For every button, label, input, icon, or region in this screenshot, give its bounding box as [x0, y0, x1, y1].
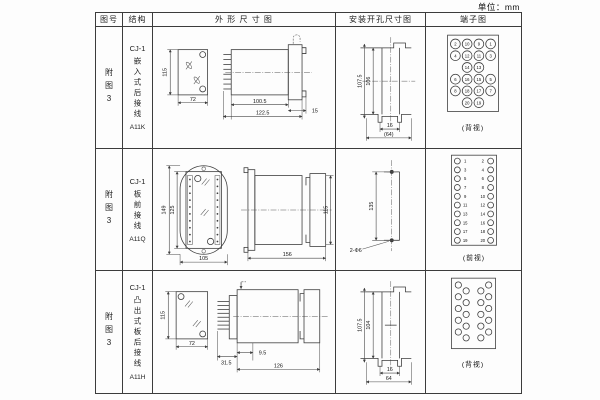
terminal-number: 16: [480, 220, 485, 225]
model-label: CJ-1: [130, 44, 146, 53]
dim-flange: 15: [311, 108, 317, 114]
header-terminal: 端子图: [426, 13, 521, 27]
terminal-number: 2: [482, 158, 485, 163]
terminal-number: 19: [463, 237, 468, 242]
type-code: A11Q: [129, 236, 145, 243]
dim-pin-depth: 31.5: [221, 360, 232, 366]
pin-comb: [223, 54, 231, 88]
dim-side-height: 115: [323, 205, 329, 214]
dim-panel-width: (64): [384, 131, 394, 137]
terminal-number: 13: [463, 211, 468, 216]
terminal-number: 20: [465, 100, 470, 105]
terminal-number: 4: [482, 167, 485, 172]
header-figure: 图号: [96, 13, 123, 27]
terminal-diagram-a11k: 2 10 9 1 4 12 11 3 14 13 6 16 15 5 8 18 …: [427, 28, 520, 148]
mounting-drawing-a11k: 107.5 106 16 (64): [337, 28, 425, 148]
terminal-circles: [450, 39, 495, 108]
mounting-drawing-a11q: 135 2-Φ6: [337, 150, 425, 270]
figure-label: 附图3: [104, 190, 115, 230]
terminal-number: 16: [465, 76, 470, 81]
dim-mount-inner-height: 106: [366, 76, 372, 85]
header-mounting: 安装开孔尺寸图: [336, 13, 426, 27]
terminal-number: 6: [482, 176, 485, 181]
seal-mark: [184, 301, 200, 328]
terminal-number: 11: [477, 53, 482, 58]
structure-desc: 嵌入式后接线: [132, 57, 143, 120]
terminal-number: 8: [482, 185, 485, 190]
row1-figure-cell: 附图3: [96, 27, 123, 149]
dim-mount-inner-height: 104: [366, 321, 372, 330]
row3-mounting-cell: 107.5 104 16 64: [336, 271, 426, 393]
dim-panel-width: 64: [385, 376, 391, 382]
terminal-diagram-a11h: (背视): [427, 272, 520, 392]
terminal-number: 5: [464, 176, 467, 181]
terminal-number: 5: [489, 76, 492, 81]
terminal-diagram-a11q: 1 3 5 7 9 11 13 15 17 19 2 4 6 8 10 12 1…: [427, 150, 520, 270]
terminal-number: 19: [477, 100, 482, 105]
terminal-numbers: 1 3 5 7 9 11 13 15 17 19 2 4 6 8 10 12 1…: [463, 158, 486, 242]
terminal-number: 3: [464, 167, 467, 172]
dim-side-total-depth: 122.5: [255, 110, 269, 116]
dim-side-depth: 126: [273, 363, 282, 369]
figure-label: 附图3: [104, 68, 115, 108]
dim-plate-height: 149: [161, 205, 167, 214]
hole-spec-label: 2-Φ6: [349, 248, 361, 254]
terminal-number: 12: [480, 202, 485, 207]
terminal-number: 20: [480, 237, 485, 242]
terminal-number: 15: [477, 76, 482, 81]
row1-mounting-cell: 107.5 106 16 (64): [336, 27, 426, 149]
view-caption: (前视): [463, 252, 485, 261]
dim-front-width: 72: [189, 96, 195, 102]
seal-mark: [185, 61, 200, 84]
outline-drawing-a11k: 115 72 100.5 122.5: [154, 28, 335, 148]
row2-figure-cell: 附图3: [96, 149, 123, 271]
dim-slot-width: 16: [386, 367, 392, 373]
terminal-number: 12: [465, 53, 470, 58]
type-code: A11K: [130, 124, 145, 131]
structure-desc: 凸出式板后接线: [132, 296, 143, 370]
terminal-number: 3: [489, 53, 492, 58]
terminal-numbers: 2 10 9 1 4 12 11 3 14 13 6 16 15 5 8 18 …: [454, 41, 492, 105]
dim-front-width: 72: [188, 341, 194, 347]
row3-figure-cell: 附图3: [96, 271, 123, 393]
row1-terminal-cell: 2 10 9 1 4 12 11 3 14 13 6 16 15 5 8 18 …: [426, 27, 521, 149]
model-label: CJ-1: [130, 283, 146, 292]
outline-drawing-a11q: 149 125 105 156 115: [154, 150, 335, 270]
row3-outline-cell: 115 72 31.5 9: [153, 271, 336, 393]
terminal-number: 18: [480, 229, 485, 234]
row3-structure-cell: CJ-1 凸出式板后接线 A11H: [123, 271, 153, 393]
dim-slot-width: 16: [386, 123, 392, 129]
model-label: CJ-1: [130, 177, 146, 186]
row2-terminal-cell: 1 3 5 7 9 11 13 15 17 19 2 4 6 8 10 12 1…: [426, 149, 521, 271]
dim-hole-spacing: 135: [369, 201, 375, 210]
terminal-number: 7: [464, 185, 467, 190]
terminal-number: 13: [477, 65, 482, 70]
dim-body-height: 125: [170, 205, 176, 214]
pin-comb: [217, 302, 229, 330]
terminal-number: 18: [465, 88, 470, 93]
page: { "unit_label": "单位：mm", "header": { "fi…: [0, 0, 600, 400]
structure-desc: 板前接线: [132, 190, 143, 232]
dim-front-height: 115: [160, 311, 166, 320]
terminal-number: 17: [463, 229, 468, 234]
dim-mount-outer-height: 107.5: [357, 318, 363, 331]
terminal-number: 15: [463, 220, 468, 225]
dimension-table: 图号 结构 外 形 尺 寸 图 安装开孔尺寸图 端子图 附图3 CJ-1 嵌入式…: [95, 12, 522, 394]
terminal-number: 6: [454, 76, 457, 81]
terminal-number: 7: [489, 88, 492, 93]
terminal-number: 8: [454, 88, 457, 93]
row2-mounting-cell: 135 2-Φ6: [336, 149, 426, 271]
mounting-drawing-a11h: 107.5 104 16 64: [337, 272, 425, 392]
row1-structure-cell: CJ-1 嵌入式后接线 A11K: [123, 27, 153, 149]
terminal-number: 10: [465, 41, 470, 46]
dim-front-height: 115: [162, 67, 168, 76]
header-outline: 外 形 尺 寸 图: [153, 13, 336, 27]
view-caption: (背视): [462, 359, 484, 368]
dim-mount-outer-height: 107.5: [357, 74, 363, 87]
terminal-circles: [455, 282, 492, 341]
terminal-number: 2: [454, 41, 457, 46]
dim-plate-width: 105: [199, 256, 208, 262]
terminal-number: 9: [464, 193, 467, 198]
terminal-number: 4: [454, 53, 457, 58]
terminal-number: 14: [465, 65, 470, 70]
terminal-number: 1: [464, 158, 467, 163]
terminal-number: 1: [489, 41, 492, 46]
terminal-number: 10: [480, 193, 485, 198]
terminal-number: 9: [478, 41, 481, 46]
terminal-strip-dots: [189, 178, 218, 242]
terminal-number: 11: [463, 202, 468, 207]
row3-terminal-cell: (背视): [426, 271, 521, 393]
figure-label: 附图3: [104, 312, 115, 352]
dim-offset: 9.5: [258, 351, 266, 357]
row2-outline-cell: 149 125 105 156 115: [153, 149, 336, 271]
row1-outline-cell: 115 72 100.5 122.5: [153, 27, 336, 149]
outline-drawing-a11h: 115 72 31.5 9: [154, 272, 335, 392]
terminal-circles: [454, 158, 493, 243]
header-structure: 结构: [123, 13, 153, 27]
terminal-number: 17: [477, 88, 482, 93]
terminal-number: 14: [480, 211, 485, 216]
row2-structure-cell: CJ-1 板前接线 A11Q: [123, 149, 153, 271]
view-caption: (背视): [462, 123, 484, 132]
type-code: A11H: [130, 374, 146, 381]
dim-side-depth: 100.5: [252, 98, 266, 104]
seal-mark: [200, 178, 209, 215]
dim-side-depth: 156: [282, 252, 291, 258]
